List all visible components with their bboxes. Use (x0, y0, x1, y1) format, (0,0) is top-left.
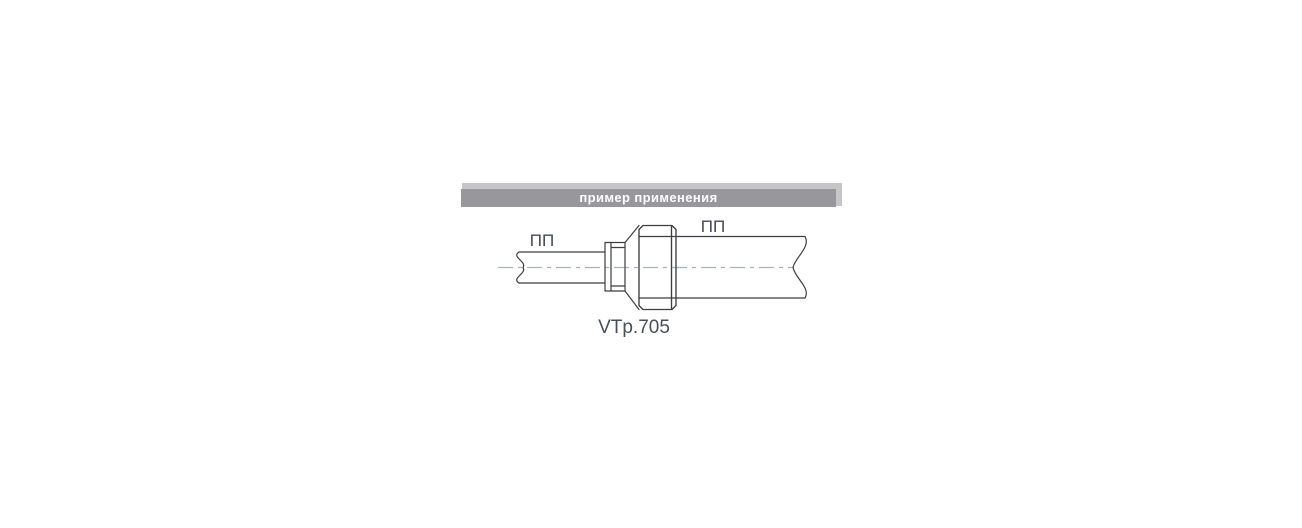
technical-drawing: ПП ПП VTp.705 (0, 0, 1302, 528)
diagram-labels: ПП ПП VTp.705 (530, 217, 725, 338)
left-pipe-material-label: ПП (530, 231, 554, 250)
cone-top-line (625, 226, 639, 243)
spigot-outline (605, 243, 625, 292)
cone-bottom-line (625, 291, 639, 310)
right-pipe-material-label: ПП (701, 217, 725, 236)
part-number-label: VTp.705 (598, 317, 670, 338)
right-pipe-break-line (793, 237, 806, 299)
threaded-spigot (605, 243, 625, 292)
page: пример применения (0, 0, 1302, 528)
